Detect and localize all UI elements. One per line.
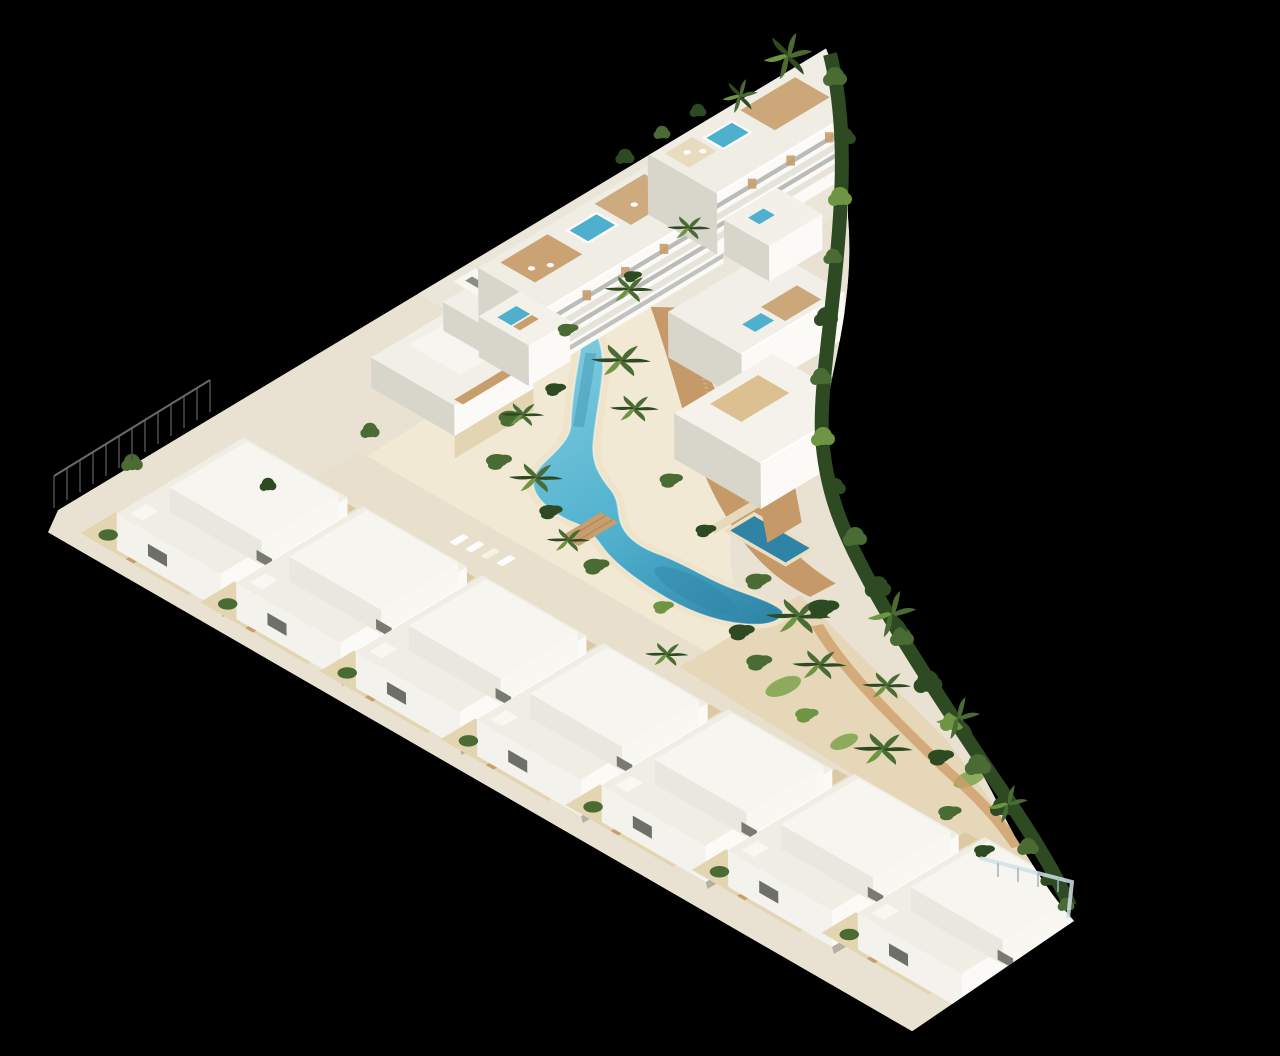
render-svg: Aerial 3D rendering of a triangular whit… bbox=[40, 16, 1280, 1040]
aerial-render: Aerial 3D rendering of a triangular whit… bbox=[40, 16, 1280, 1040]
